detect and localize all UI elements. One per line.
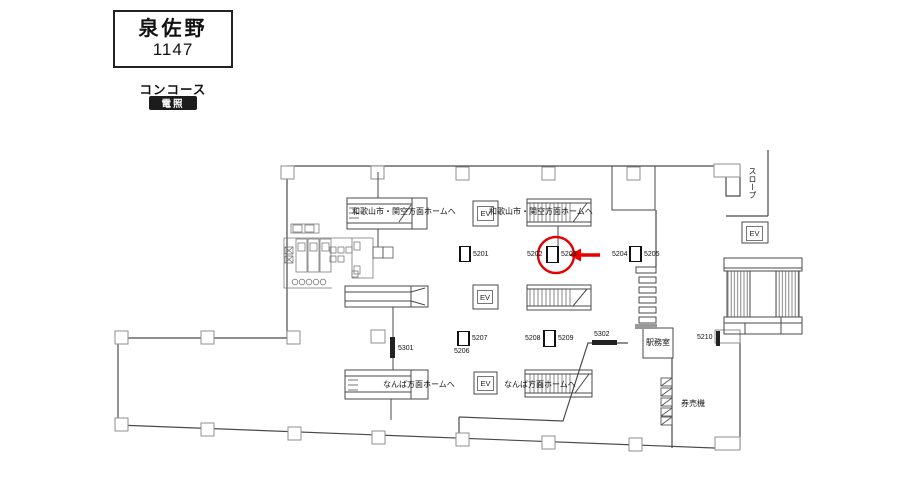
sign-5302-bar: [592, 340, 617, 345]
sign-label-5206: 5206: [454, 348, 470, 355]
rooms: [473, 166, 768, 394]
sign-label-5205: 5205: [644, 251, 660, 258]
slope-label: スロープ: [748, 167, 756, 207]
street-stairs: [724, 258, 802, 334]
route-label-namba-left: なんば方面ホームへ: [383, 381, 455, 389]
sign-label-5202: 5202: [527, 251, 543, 258]
sign-label-5302: 5302: [594, 331, 610, 338]
route-label-wakayama-center: 和歌山市・関空方面ホームへ: [489, 208, 593, 216]
elevator-label-right: EV: [746, 226, 763, 241]
stairs-center: [525, 199, 592, 397]
ticket-machines-label: 券売機: [681, 400, 705, 408]
route-label-wakayama-left: 和歌山市・関空方面ホームへ: [352, 208, 456, 216]
sign-label-5204: 5204: [612, 251, 628, 258]
sign-label-5209: 5209: [558, 335, 574, 342]
sign-label-5201: 5201: [473, 251, 489, 258]
station-floorplan-page: 泉佐野 1147 コンコース 電照: [0, 0, 919, 491]
ticket-machine-units: [661, 378, 672, 425]
sign-5210-bar: [716, 331, 720, 346]
sign-label-5210: 5210: [697, 334, 713, 341]
sign-box-5206-5207: [457, 331, 470, 346]
sign-label-5207: 5207: [472, 335, 488, 342]
elevator-label-mid-center: EV: [477, 290, 493, 304]
route-label-namba-center: なんば方面ホームへ: [504, 381, 576, 389]
sign-box-5202-5203-highlighted: [546, 246, 559, 263]
sign-label-5203: 5203: [561, 251, 577, 258]
elevator-label-bottom-center: EV: [477, 376, 494, 391]
sign-box-5204-5205: [629, 246, 642, 262]
sign-box-5201: [459, 246, 471, 262]
sign-5301-bar: [390, 337, 395, 358]
restroom-area: [284, 224, 393, 288]
sign-label-5208: 5208: [525, 335, 541, 342]
sign-box-5208-5209: [543, 330, 556, 347]
fare-gates: [635, 267, 657, 329]
station-office-label: 駅務室: [646, 339, 670, 347]
sign-label-5301: 5301: [398, 345, 414, 352]
